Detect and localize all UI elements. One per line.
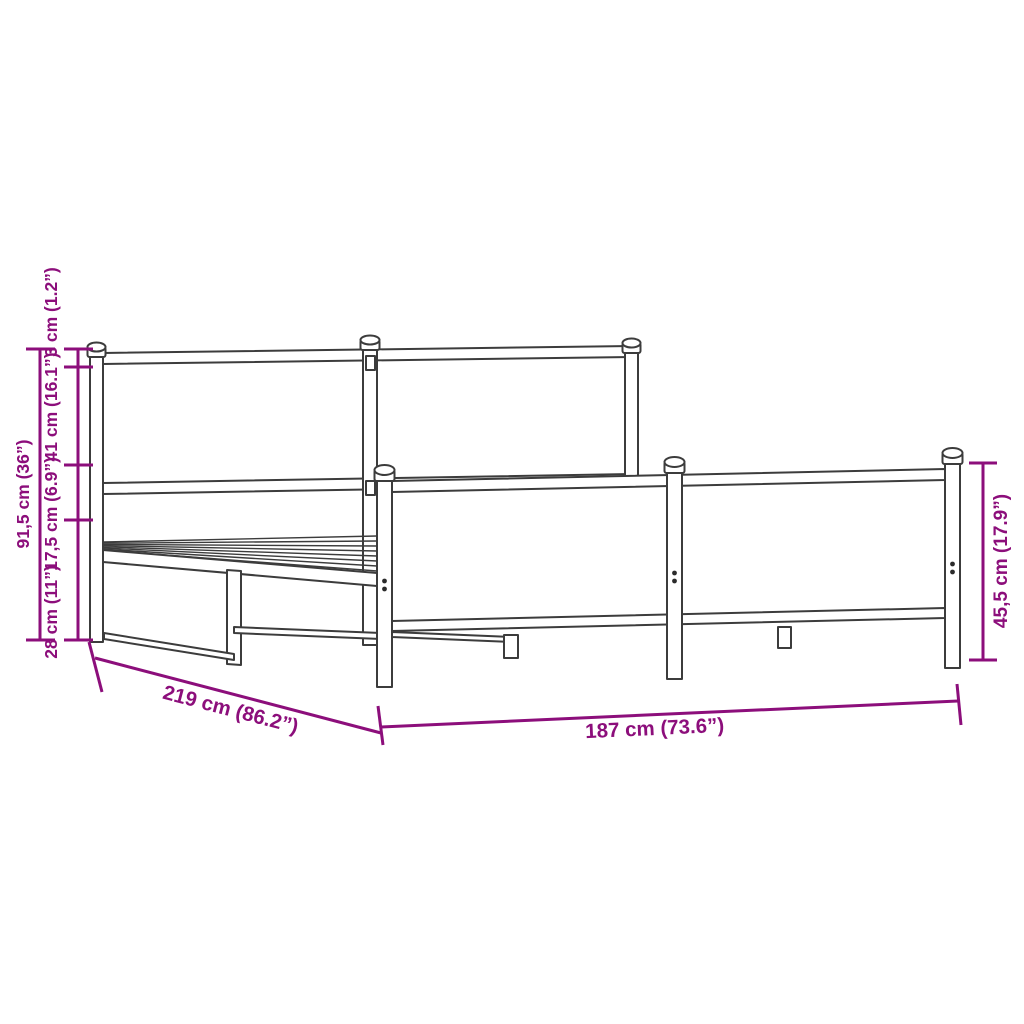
dimension-labels: 91,5 cm (36”) 28 cm (11”) 17,5 cm (6.9”)…	[13, 267, 1012, 743]
headboard-near-post	[90, 357, 103, 642]
footboard-right-post-cap-top	[943, 448, 963, 458]
footboard-middle-post-cap-top	[665, 457, 685, 467]
label-segment-post-cap: 3 cm (1.2”)	[41, 267, 61, 356]
label-total-height: 91,5 cm (36”)	[13, 440, 33, 549]
base-far-stretcher-under-footboard	[392, 632, 511, 642]
headboard	[88, 336, 641, 646]
diagram-canvas: 91,5 cm (36”) 28 cm (11”) 17,5 cm (6.9”)…	[0, 0, 1024, 1024]
base-diagonal-stretcher	[104, 633, 234, 660]
label-length: 219 cm (86.2”)	[160, 681, 300, 739]
label-footboard-height: 45,5 cm (17.9”)	[991, 494, 1012, 628]
base-support-foot-right	[778, 627, 791, 648]
label-segment-base-height: 28 cm (11”)	[41, 565, 61, 658]
footboard	[375, 448, 963, 687]
screw	[672, 571, 677, 576]
label-width: 187 cm (73.6”)	[585, 714, 725, 743]
base-support-leg	[227, 570, 241, 665]
footboard-left-post-cap-top	[375, 465, 395, 475]
headboard-middle-post-cap-top	[361, 336, 380, 345]
screw	[672, 579, 677, 584]
label-segment-rail-height: 17,5 cm (6.9”)	[41, 457, 61, 571]
headboard-middle-post-bracket-top	[366, 356, 375, 370]
bed-base	[103, 536, 791, 665]
headboard-far-post	[625, 352, 638, 478]
base-lower-stretcher	[234, 627, 381, 639]
base-support-foot-left	[504, 635, 518, 658]
dimension-height-segments	[64, 349, 93, 640]
screw	[950, 562, 955, 567]
headboard-far-post-cap-top	[623, 339, 641, 348]
screw	[382, 579, 387, 584]
headboard-middle-post	[363, 349, 377, 645]
bed-frame-dimension-diagram: 91,5 cm (36”) 28 cm (11”) 17,5 cm (6.9”)…	[0, 0, 1024, 1024]
headboard-middle-post-bracket-bottom	[366, 481, 375, 495]
screw	[950, 570, 955, 575]
label-segment-headboard-panel: 41 cm (16.1”)	[41, 353, 61, 462]
screw	[382, 587, 387, 592]
